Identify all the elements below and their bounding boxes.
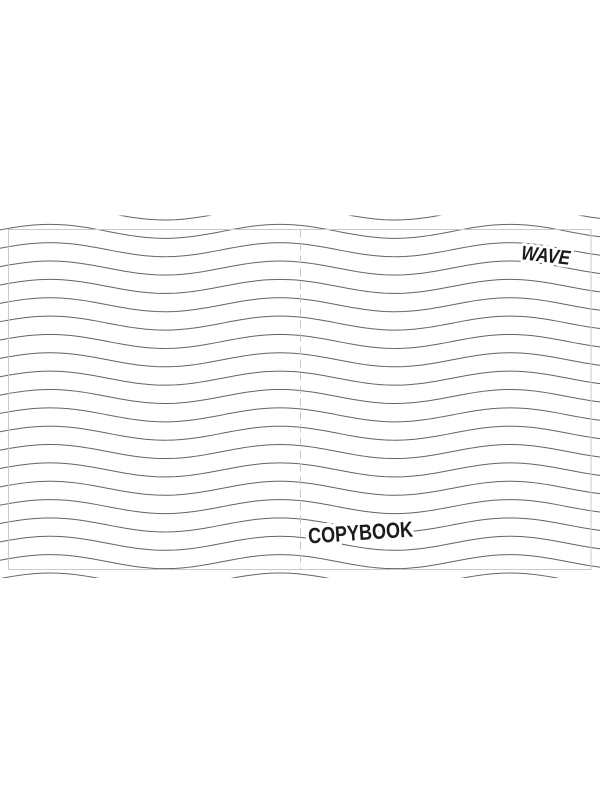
brand-wave-label: WAVE (520, 242, 572, 269)
wave-line (0, 206, 600, 220)
copybook-cover-spread: WAVE COPYBOOK (0, 0, 600, 800)
wave-line (0, 573, 600, 587)
cover-canvas: WAVE COPYBOOK (0, 0, 600, 800)
copybook-title-label: COPYBOOK (307, 517, 414, 549)
